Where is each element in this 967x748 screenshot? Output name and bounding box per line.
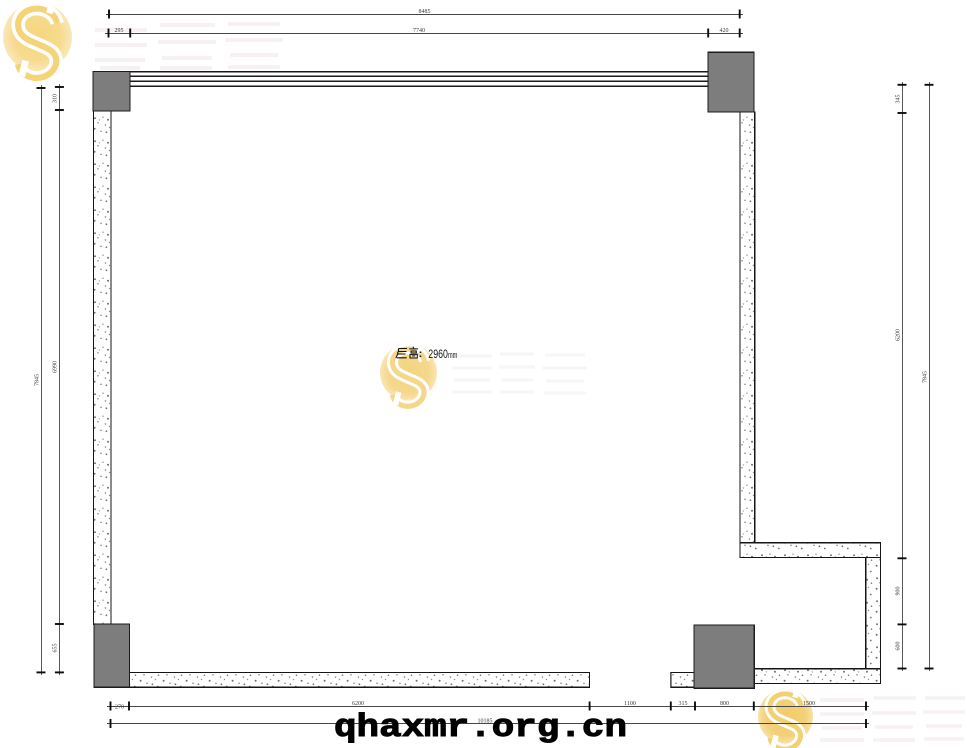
svg-text:mm: mm xyxy=(448,350,457,361)
svg-text:1100: 1100 xyxy=(624,701,636,707)
svg-text:600: 600 xyxy=(896,642,902,651)
svg-text:7740: 7740 xyxy=(413,28,425,34)
svg-text:7845: 7845 xyxy=(923,371,929,383)
svg-text:270: 270 xyxy=(115,705,124,711)
svg-text:qhaxmr.org.cn: qhaxmr.org.cn xyxy=(334,709,627,746)
svg-text:315: 315 xyxy=(679,701,688,707)
svg-text:6200: 6200 xyxy=(352,701,364,707)
svg-text:295: 295 xyxy=(115,28,124,34)
svg-text:2960: 2960 xyxy=(428,347,448,361)
svg-text:1500: 1500 xyxy=(803,701,815,707)
svg-text:800: 800 xyxy=(720,701,729,707)
svg-text::: : xyxy=(419,348,423,360)
svg-text:655: 655 xyxy=(53,644,59,653)
svg-text:8485: 8485 xyxy=(419,9,431,15)
svg-text:345: 345 xyxy=(896,95,902,104)
svg-text:900: 900 xyxy=(896,587,902,596)
svg-text:7845: 7845 xyxy=(35,374,41,386)
svg-text:310: 310 xyxy=(53,94,59,103)
svg-text:6990: 6990 xyxy=(53,361,59,373)
svg-text:420: 420 xyxy=(720,28,729,34)
svg-text:6200: 6200 xyxy=(896,329,902,341)
